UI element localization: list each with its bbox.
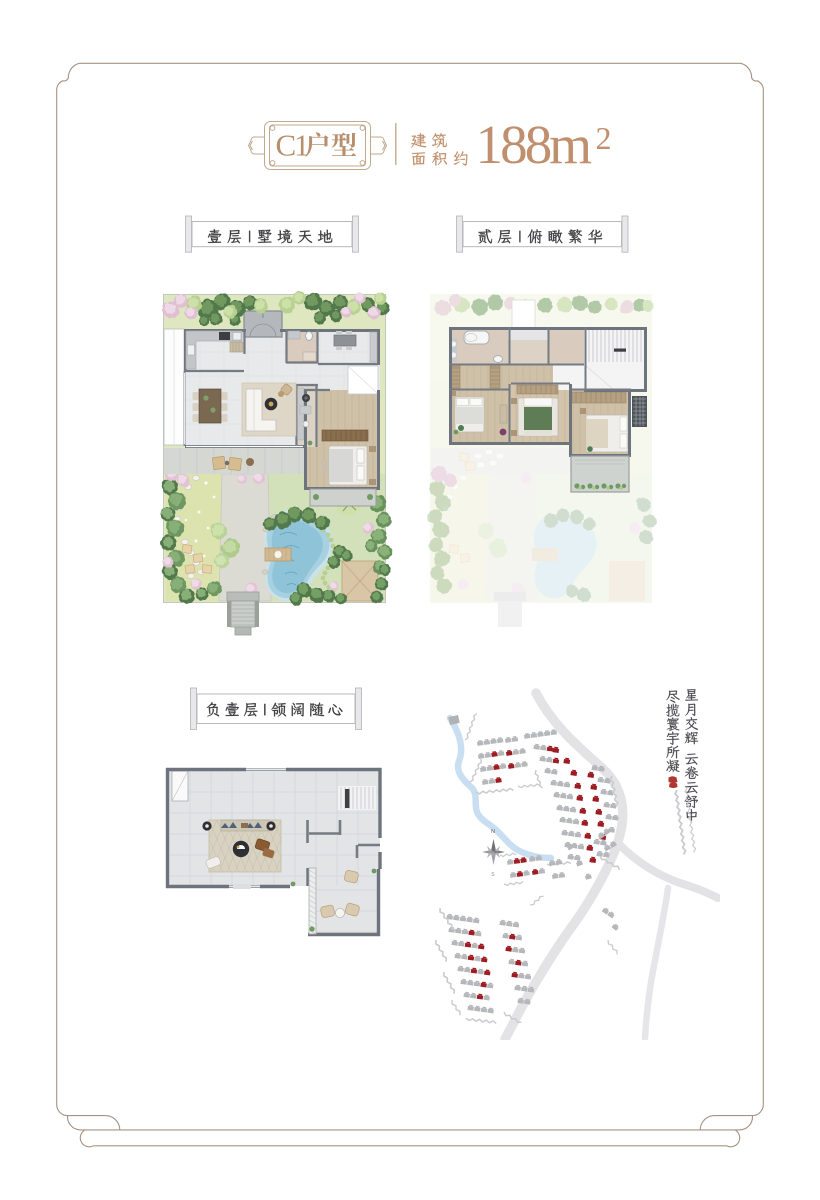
svg-text:N: N: [491, 829, 495, 835]
svg-text:S: S: [491, 872, 495, 878]
svg-text:2: 2: [596, 120, 612, 156]
svg-text:1: 1: [294, 128, 310, 163]
svg-text:188m: 188m: [476, 114, 592, 175]
